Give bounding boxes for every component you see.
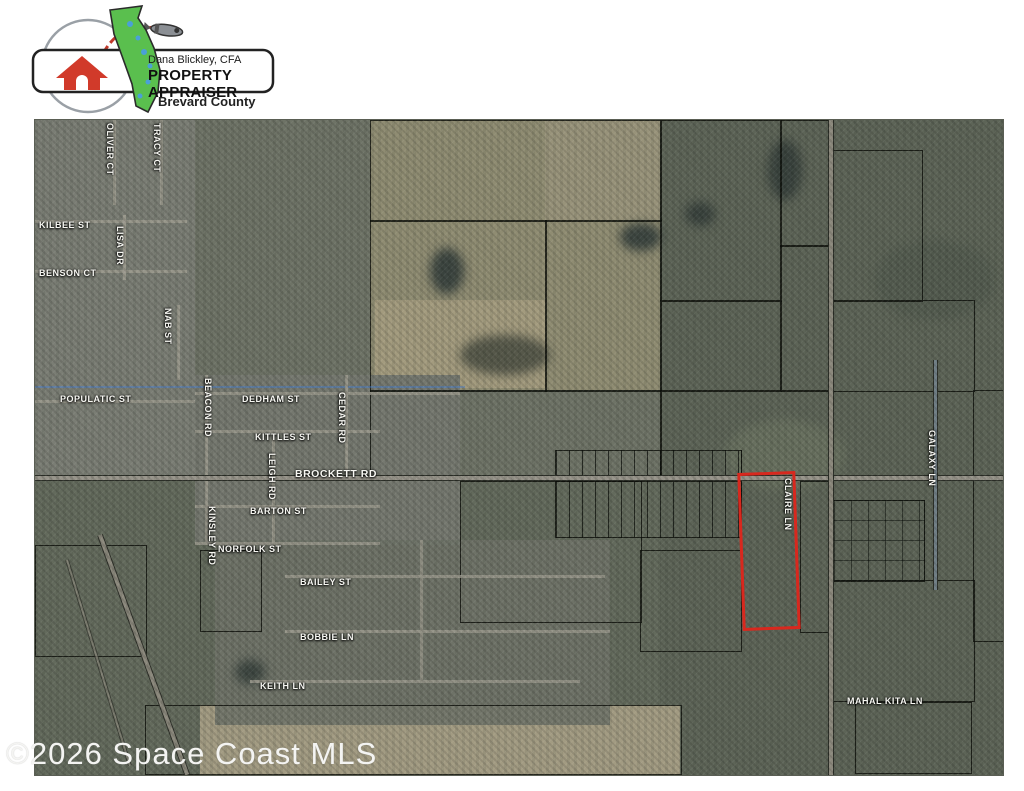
street-label-keith-ln: KEITH LN bbox=[260, 681, 306, 691]
street-label-nab-st: NAB ST bbox=[163, 308, 173, 345]
street-label-norfolk-st: NORFOLK ST bbox=[218, 544, 282, 554]
page: Dana Blickley, CFA PROPERTY APPRAISER Br… bbox=[0, 0, 1024, 791]
street-label-tracy-ct: TRACY CT bbox=[152, 123, 162, 172]
street-label-populatic-st: POPULATIC ST bbox=[60, 394, 131, 404]
street-label-brockett-rd: BROCKETT RD bbox=[295, 468, 377, 480]
street-label-galaxy-ln: GALAXY LN bbox=[927, 430, 937, 486]
street-label-beacon-rd: BEACON RD bbox=[203, 378, 213, 437]
street-label-dedham-st: DEDHAM ST bbox=[242, 394, 300, 404]
logo-county: Brevard County bbox=[158, 94, 256, 109]
street-label-lisa-dr: LISA DR bbox=[115, 226, 125, 265]
street-label-mahal-kita-ln: MAHAL KITA LN bbox=[847, 696, 923, 706]
street-label-kilbee-st: KILBEE ST bbox=[39, 220, 91, 230]
aerial-parcel-map: OLIVER CT TRACY CT KILBEE ST BENSON CT L… bbox=[35, 120, 1003, 775]
street-label-cedar-rd: CEDAR RD bbox=[337, 392, 347, 444]
street-label-kinsley-rd: KINSLEY RD bbox=[207, 506, 217, 565]
street-label-bailey-st: BAILEY ST bbox=[300, 577, 351, 587]
aerial-texture-overlay bbox=[35, 120, 1003, 775]
mls-watermark: ©2026 Space Coast MLS bbox=[6, 736, 377, 772]
street-label-benson-ct: BENSON CT bbox=[39, 268, 97, 278]
street-label-oliver-ct: OLIVER CT bbox=[105, 123, 115, 176]
highlighted-parcel-outline bbox=[737, 471, 800, 631]
property-appraiser-logo: Dana Blickley, CFA PROPERTY APPRAISER Br… bbox=[26, 4, 286, 116]
street-label-bobbie-ln: BOBBIE LN bbox=[300, 632, 354, 642]
street-label-kittles-st: KITTLES ST bbox=[255, 432, 312, 442]
street-label-barton-st: BARTON ST bbox=[250, 506, 307, 516]
logo-owner-name: Dana Blickley, CFA bbox=[148, 54, 241, 66]
street-label-leigh-rd: LEIGH RD bbox=[267, 453, 277, 500]
